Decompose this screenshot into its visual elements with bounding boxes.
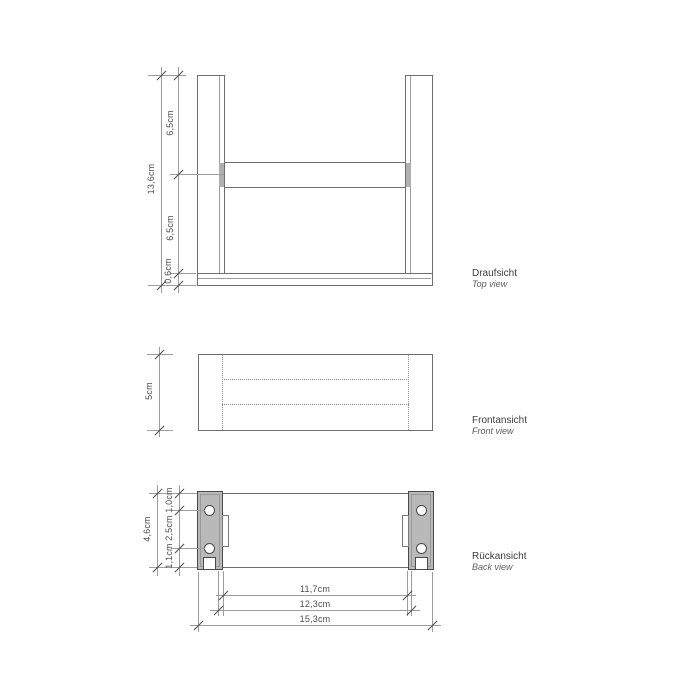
front-view-panel xyxy=(198,354,433,431)
extension-line xyxy=(170,273,196,274)
dim-label-back-height: 4,6cm xyxy=(142,497,152,561)
top-view-base-bar-midline xyxy=(198,278,431,279)
front-view-label-german: Frontansicht xyxy=(472,415,527,426)
dim-line xyxy=(178,67,179,293)
screw-hole xyxy=(416,505,427,516)
extension-line xyxy=(171,548,205,549)
front-view-label-english: Front view xyxy=(472,426,514,436)
dim-label-upper-depth: 6,5cm xyxy=(165,91,175,155)
wall-bracket-tab-right xyxy=(402,515,409,547)
dim-label-inner-width: 11,7cm xyxy=(275,584,355,594)
hidden-edge-line xyxy=(222,404,409,405)
dim-label-front-height: 5cm xyxy=(144,359,154,423)
extension-line xyxy=(171,510,205,511)
dim-label-total-width: 15,3cm xyxy=(275,614,355,624)
dim-line xyxy=(190,625,441,626)
back-view-label-german: Rückansicht xyxy=(472,551,526,562)
top-view-label-german: Draufsicht xyxy=(472,268,517,279)
top-view-label-english: Top view xyxy=(472,279,507,289)
hidden-edge-line xyxy=(222,355,223,430)
extension-line xyxy=(148,75,186,76)
back-view-panel xyxy=(198,493,433,568)
dim-line xyxy=(216,595,416,596)
dim-label-base-thickness: 0,6cm xyxy=(163,239,173,303)
dim-label-mount-width: 12,3cm xyxy=(275,599,355,609)
dim-line xyxy=(210,610,420,611)
top-view-crossbar-right-cap xyxy=(406,163,411,187)
screw-hole xyxy=(204,505,215,516)
screw-hole xyxy=(204,543,215,554)
keyhole-notch xyxy=(203,557,216,569)
dim-line xyxy=(159,347,160,437)
wall-bracket-tab-left xyxy=(222,515,229,547)
top-view-crossbar-left-cap xyxy=(219,163,224,187)
keyhole-notch xyxy=(415,557,428,569)
dim-label-total-depth: 13,6cm xyxy=(146,147,156,211)
technical-drawing-sheet: 13,6cm 6,5cm 6,5cm 0,6cm 5cm xyxy=(0,0,699,700)
hidden-edge-line xyxy=(222,379,409,380)
dim-line xyxy=(161,67,162,293)
dim-line xyxy=(157,485,158,576)
dim-line xyxy=(179,485,180,576)
back-view-label-english: Back view xyxy=(472,562,513,572)
dim-label-hole-bottom-offset: 1,1cm xyxy=(164,524,174,588)
top-view-crossbar xyxy=(224,162,406,188)
hidden-edge-line xyxy=(408,355,409,430)
top-view-base-bar xyxy=(197,273,433,286)
screw-hole xyxy=(416,543,427,554)
